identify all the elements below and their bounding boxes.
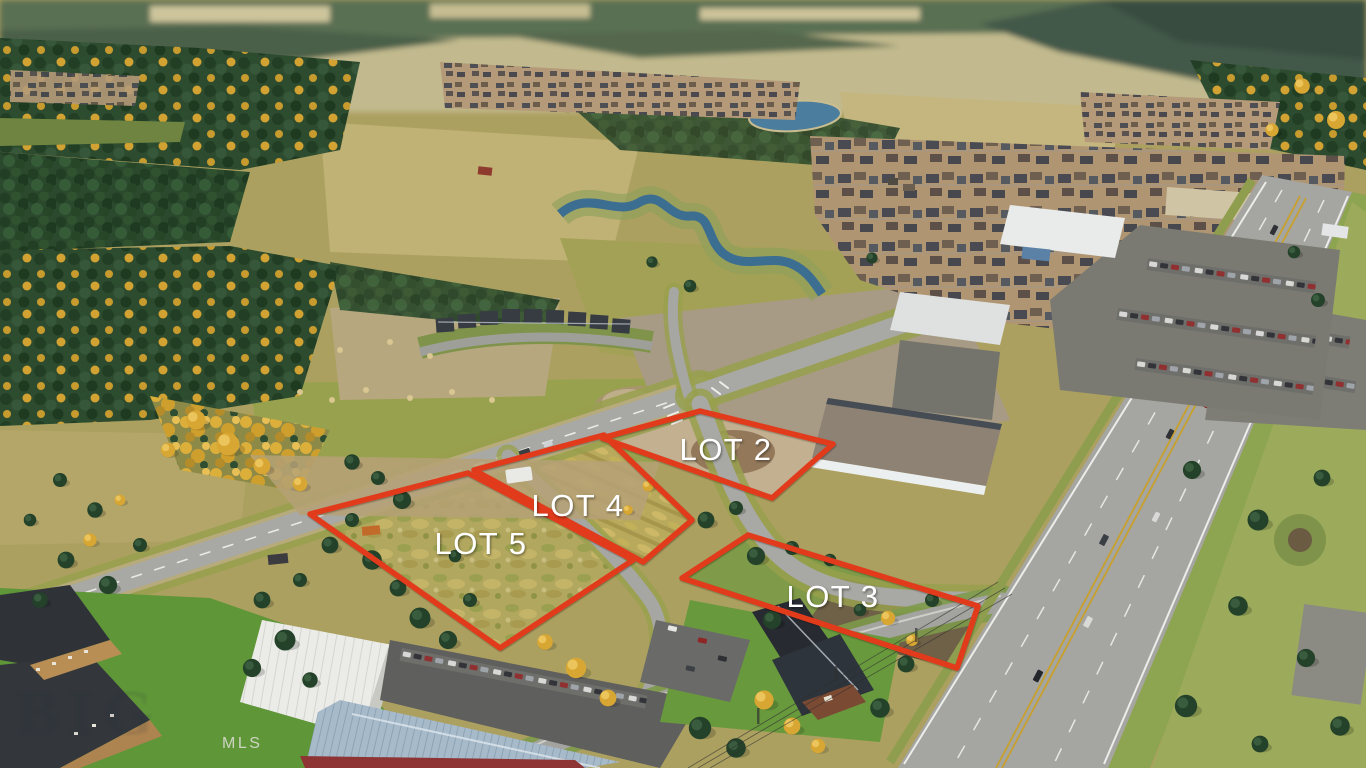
container-orange	[362, 525, 381, 536]
lot-3-label: LOT 3	[786, 579, 879, 614]
agency-watermark: BIG	[16, 677, 163, 748]
aerial-lot-photo: LOT 2 LOT 3 LOT 4 LOT 5 BIG MLS	[0, 0, 1366, 768]
container-dark	[268, 553, 289, 565]
lot-5-label: LOT 5	[434, 526, 527, 561]
mls-watermark: MLS	[222, 735, 262, 752]
lot-2-label: LOT 2	[679, 432, 772, 467]
lot-4-label: LOT 4	[531, 488, 624, 523]
